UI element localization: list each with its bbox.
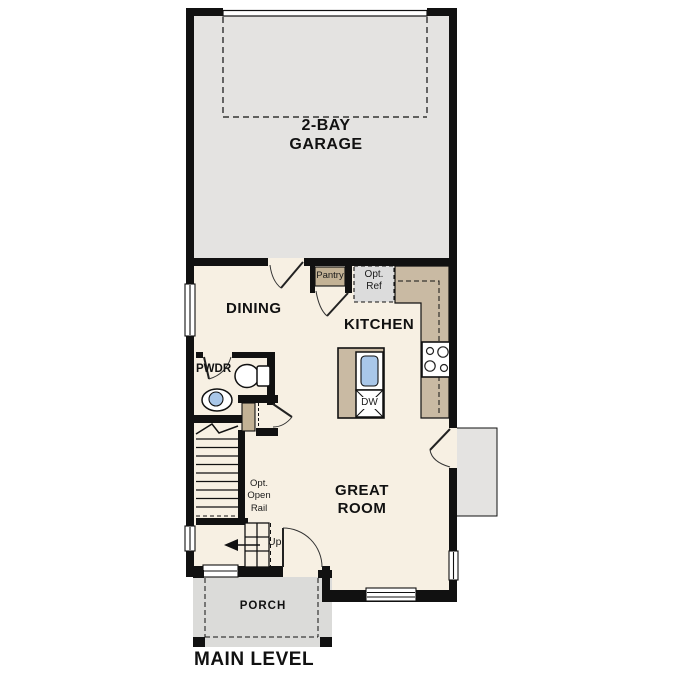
vanity-sink-icon	[202, 389, 232, 411]
garage-room-label: 2-BAY GARAGE	[240, 117, 412, 155]
opt-open-rail-label: Opt. Open Rail	[243, 478, 275, 515]
toilet-icon	[235, 365, 270, 388]
window-dining	[185, 284, 195, 336]
stairs-up-label: Up	[268, 536, 281, 548]
wall-east	[449, 8, 457, 602]
window-entry	[185, 526, 195, 551]
cooktop	[422, 342, 453, 377]
wall-north-right	[427, 8, 457, 16]
wall-closet-south	[256, 428, 278, 436]
kitchen-sink	[361, 356, 378, 386]
garage-door	[223, 11, 427, 17]
wall-stair-south	[196, 518, 248, 525]
window-great-south	[366, 588, 416, 601]
opt-ref-label: Opt. Ref	[354, 269, 394, 293]
window-front	[203, 565, 238, 577]
floor-plan-drawing	[0, 0, 687, 687]
dishwasher-label: DW	[357, 397, 382, 409]
wall-closet-north	[238, 395, 278, 403]
window-great-east	[449, 551, 458, 580]
great-room-label: GREAT ROOM	[312, 482, 412, 517]
plan-title: MAIN LEVEL	[194, 649, 314, 671]
living-floor-south	[322, 566, 449, 590]
pantry-label: Pantry	[313, 270, 347, 281]
kitchen-room-label: KITCHEN	[344, 316, 414, 334]
wall-garage-divider	[186, 258, 457, 266]
wall-north-left	[186, 8, 223, 16]
floor-plan: 2-BAY GARAGE DINING KITCHEN GREAT ROOM P…	[0, 0, 687, 687]
powder-room-label: PWDR	[196, 363, 231, 377]
wall-powder-south	[194, 415, 245, 423]
rear-patio-pad	[456, 428, 497, 516]
porch-label: PORCH	[213, 600, 313, 614]
dining-room-label: DINING	[226, 300, 282, 318]
